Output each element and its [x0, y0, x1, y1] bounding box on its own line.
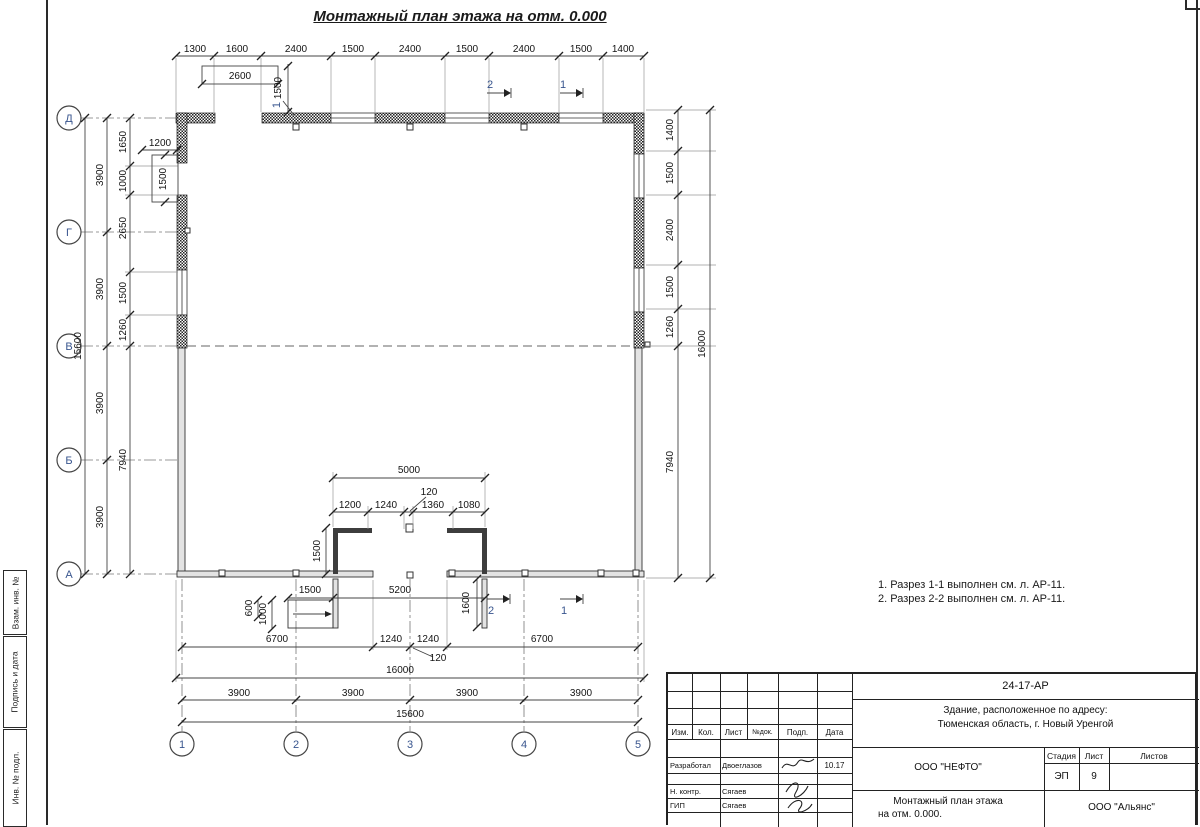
dim-label: 1500 [665, 275, 676, 298]
dim-label: 2600 [229, 71, 252, 82]
dim-label: 6700 [266, 634, 289, 645]
dim-label: 1500 [570, 44, 593, 55]
tb-stage-value: ЭП [1044, 771, 1079, 782]
tb-col-header: Кол. [692, 728, 720, 737]
dim-label: 1600 [226, 44, 249, 55]
tb-object-line: Здание, расположенное по адресу: [852, 705, 1199, 716]
axis-lines [81, 118, 638, 731]
dim-label: 6700 [531, 634, 554, 645]
section-mark-label: 1 [560, 79, 566, 91]
dim-label: 600 [244, 599, 255, 616]
tb-drawing-title: Монтажный план этажа [852, 796, 1044, 807]
axis-label: 3 [407, 739, 413, 751]
dim-label: 2400 [399, 44, 422, 55]
dim-label: 1260 [665, 315, 676, 338]
extension-lines [125, 58, 716, 682]
dim-label: 1200 [339, 500, 362, 511]
tb-company: ООО "НЕФТО" [852, 762, 1044, 773]
axis-label: В [65, 341, 72, 353]
dim-label: 3900 [456, 688, 479, 699]
dim-label: 15600 [73, 332, 84, 360]
dim-label: 1200 [149, 138, 172, 149]
tb-sheet-value: 9 [1079, 771, 1109, 782]
drawing-sheet: { "frame": { "sidebar_labels": ["Взам. и… [0, 0, 1200, 825]
tb-sheet-label: Лист [1079, 751, 1109, 761]
axis-label: 5 [635, 739, 641, 751]
titleblock-line [668, 812, 852, 813]
dim-label: 1400 [612, 44, 635, 55]
tb-sheets-label: Листов [1109, 751, 1199, 761]
dim-label: 3900 [570, 688, 593, 699]
dim-label: 7940 [118, 448, 129, 471]
dim-label: 16000 [697, 330, 708, 358]
tb-drawing-title: на отм. 0.000. [852, 809, 1044, 820]
tb-name: Сягаев [722, 801, 778, 810]
tb-date: 10.17 [817, 761, 852, 770]
axis-label: Д [65, 113, 73, 125]
tb-col-header: №док. [747, 729, 778, 736]
dim-label: 7940 [665, 450, 676, 473]
axis-label: 2 [293, 739, 299, 751]
dim-label: 2400 [285, 44, 308, 55]
titleblock-line [668, 757, 852, 758]
axis-label: Г [66, 227, 72, 239]
titleblock-line [852, 747, 1199, 748]
tb-col-header: Дата [817, 728, 852, 737]
tb-object-line: Тюменская область, г. Новый Уренгой [852, 719, 1199, 730]
titleblock-line [668, 691, 852, 692]
dim-label: 1000 [258, 602, 269, 625]
position-callout: 1 [271, 102, 283, 108]
dim-label: 3900 [228, 688, 251, 699]
tb-name: Сягаев [722, 787, 778, 796]
dim-label: 1500 [299, 585, 322, 596]
axis-label: Б [65, 455, 72, 467]
titleblock-line [668, 708, 852, 709]
section-mark-label: 2 [488, 605, 494, 617]
dim-label: 1500 [456, 44, 479, 55]
floor-plan-svg: 2 1 2 1 1 Д Г В Б А 1 2 3 4 5 1300 1600 … [0, 0, 780, 770]
tb-doc-number: 24-17-АР [852, 680, 1199, 692]
dim-label: 5200 [389, 585, 412, 596]
dim-label: 2650 [118, 216, 129, 239]
dimension-labels: 1300 1600 2400 1500 2400 1500 2400 1500 … [73, 44, 708, 720]
frame-corner-mark [1185, 8, 1200, 10]
dim-label: 1260 [118, 318, 129, 341]
dim-label: 3900 [95, 163, 106, 186]
dim-label: 1240 [380, 634, 403, 645]
axis-bubbles: Д Г В Б А 1 2 3 4 5 [57, 106, 650, 756]
titleblock-line [668, 784, 852, 785]
tb-role: ГИП [670, 801, 720, 810]
axis-label: А [65, 569, 73, 581]
dim-label: 1360 [422, 500, 445, 511]
dim-label: 1500 [342, 44, 365, 55]
notes-block: 1. Разрез 1-1 выполнен см. л. АР-11. 2. … [878, 579, 1065, 606]
note-line: 2. Разрез 2-2 выполнен см. л. АР-11. [878, 593, 1065, 607]
vestibule-walls [333, 528, 487, 574]
dim-label: 2400 [513, 44, 536, 55]
walls [176, 113, 644, 628]
tb-stage-label: Стадия [1044, 751, 1079, 761]
dim-label: 3900 [342, 688, 365, 699]
title-block: Изм. Кол. Лист №док. Подп. Дата Разработ… [666, 672, 1197, 825]
titleblock-line [1044, 763, 1199, 764]
dim-label: 1650 [118, 130, 129, 153]
dim-label: 1080 [458, 500, 481, 511]
tb-name: Двоеглазов [722, 761, 778, 770]
dim-label: 2400 [665, 218, 676, 241]
dim-label: 3900 [95, 391, 106, 414]
titleblock-line [852, 699, 1199, 700]
dim-label: 1600 [461, 591, 472, 614]
dim-label: 120 [421, 487, 438, 498]
dim-label: 3900 [95, 505, 106, 528]
tb-col-header: Лист [720, 728, 747, 737]
tb-role: Разработал [670, 761, 720, 770]
axis-label: 1 [179, 739, 185, 751]
titleblock-line [720, 674, 721, 827]
dim-label: 1500 [273, 76, 284, 99]
dim-label: 1000 [118, 169, 129, 192]
section-mark-label: 2 [487, 79, 493, 91]
column-markers [185, 124, 650, 578]
dim-label: 1500 [118, 281, 129, 304]
dim-label: 3900 [95, 277, 106, 300]
signature-scribbles [778, 752, 817, 816]
titleblock-line [668, 798, 852, 799]
section-mark-label: 1 [561, 605, 567, 617]
note-line: 1. Разрез 1-1 выполнен см. л. АР-11. [878, 579, 1065, 593]
titleblock-line [852, 790, 1199, 791]
tb-col-header: Подп. [778, 728, 817, 737]
titleblock-line [668, 724, 852, 725]
dim-label: 1240 [417, 634, 440, 645]
tb-contractor: ООО "Альянс" [1044, 802, 1199, 813]
ramp [288, 600, 333, 628]
dim-label: 1240 [375, 500, 398, 511]
titleblock-line [668, 739, 852, 740]
tb-col-header: Изм. [668, 728, 692, 737]
tb-role: Н. контр. [670, 787, 720, 796]
titleblock-line [668, 773, 852, 774]
axis-label: 4 [521, 739, 527, 751]
dim-label: 1500 [158, 167, 169, 190]
dim-label: 1300 [184, 44, 207, 55]
dim-label: 5000 [398, 465, 421, 476]
section-marks: 2 1 2 1 1 [271, 79, 583, 617]
titleblock-line [817, 674, 818, 827]
dim-label: 16000 [386, 665, 414, 676]
dim-label: 1500 [665, 161, 676, 184]
dim-label: 15600 [396, 709, 424, 720]
dim-label: 120 [430, 653, 447, 664]
dim-label: 1500 [312, 539, 323, 562]
dim-label: 1400 [665, 118, 676, 141]
